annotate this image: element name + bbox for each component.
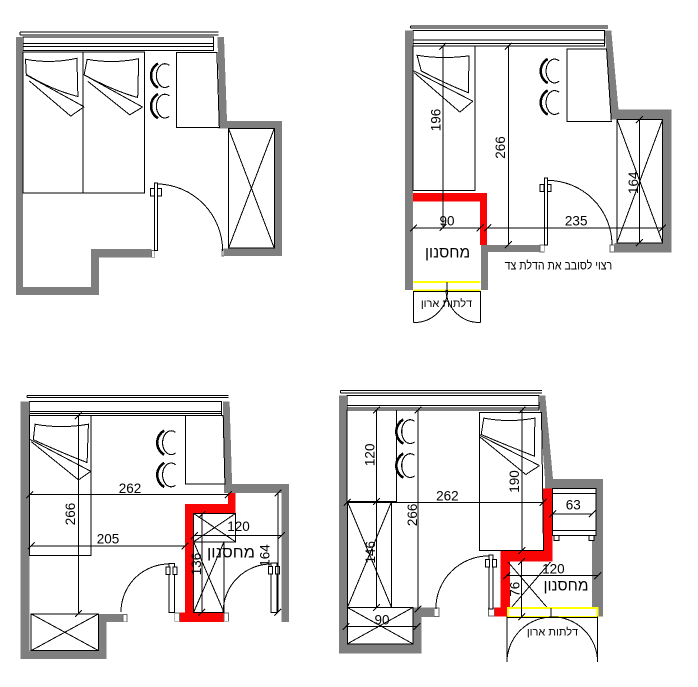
svg-text:266: 266 bbox=[493, 136, 508, 159]
svg-text:120: 120 bbox=[542, 561, 565, 576]
svg-text:146: 146 bbox=[363, 541, 378, 564]
svg-text:רצוי לסובב את הדלת צד: רצוי לסובב את הדלת צד bbox=[505, 259, 613, 273]
svg-text:164: 164 bbox=[626, 171, 641, 194]
svg-text:דלתות ארון: דלתות ארון bbox=[421, 297, 472, 310]
svg-text:דלתות ארון: דלתות ארון bbox=[527, 626, 578, 639]
svg-text:מחסנון: מחסנון bbox=[543, 577, 588, 594]
svg-text:120: 120 bbox=[362, 444, 377, 467]
svg-text:מחסנון: מחסנון bbox=[425, 245, 470, 262]
svg-text:235: 235 bbox=[565, 214, 588, 229]
svg-text:90: 90 bbox=[374, 612, 389, 627]
svg-text:266: 266 bbox=[63, 503, 78, 526]
svg-text:63: 63 bbox=[566, 497, 581, 512]
svg-text:76: 76 bbox=[508, 582, 523, 597]
svg-text:262: 262 bbox=[119, 481, 142, 496]
svg-text:120: 120 bbox=[227, 519, 250, 534]
svg-text:190: 190 bbox=[507, 470, 522, 493]
svg-text:90: 90 bbox=[439, 214, 454, 229]
svg-text:136: 136 bbox=[189, 553, 204, 576]
svg-text:196: 196 bbox=[429, 109, 444, 132]
svg-text:205: 205 bbox=[97, 531, 120, 546]
svg-text:262: 262 bbox=[436, 489, 459, 504]
svg-text:266: 266 bbox=[405, 504, 420, 527]
svg-text:מחסנון: מחסנון bbox=[207, 545, 255, 562]
svg-text:164: 164 bbox=[258, 544, 273, 567]
